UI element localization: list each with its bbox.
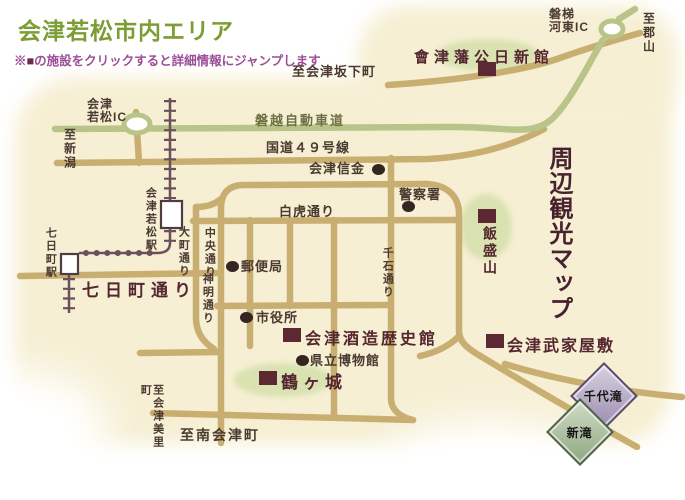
note-text: の施設をクリックすると詳細情報にジャンプします <box>34 54 321 68</box>
rail-west <box>79 228 170 253</box>
label-city-hall: 市役所 <box>256 311 298 326</box>
label-wakamatsu-ic: 会津 若松IC <box>87 98 127 125</box>
label-sengoku-street: 千石通り <box>381 247 393 299</box>
label-omachi-street: 大町通り <box>177 226 189 278</box>
expressway-stub <box>619 9 635 19</box>
road-to-minamiaizu <box>153 413 413 420</box>
dot-police-station <box>402 201 415 212</box>
label-bukeyashiki[interactable]: 会津武家屋敷 <box>507 332 615 356</box>
label-aizuwakamatsu-station: 会津若松駅 <box>144 187 156 252</box>
label-banetsu-expressway: 磐越自動車道 <box>255 114 345 129</box>
nanukamachi-station-box <box>61 254 78 274</box>
aizuwakamatsu-station-box <box>161 201 182 228</box>
label-chuo-street: 中央通り <box>203 227 215 279</box>
legend-square-icon: ■ <box>27 54 35 68</box>
logo-shintaki-text: 新滝 <box>567 423 593 440</box>
dot-post-office <box>226 261 239 272</box>
logo-chiyotaki-text: 千代滝 <box>584 387 623 404</box>
label-post-office: 郵便局 <box>241 260 283 275</box>
road-mid <box>217 305 390 306</box>
legend-note: ※■の施設をクリックすると詳細情報にジャンプします <box>14 50 321 69</box>
label-tsurugajo[interactable]: 鶴ヶ城 <box>281 368 347 393</box>
dot-city-hall <box>240 312 253 323</box>
note-prefix: ※ <box>14 54 27 68</box>
dot-prefectural-museum <box>296 355 309 366</box>
road-byakko <box>193 220 457 221</box>
label-to-niigata: 至新潟 <box>62 128 75 170</box>
label-sake-museum[interactable]: 会津酒造歴史館 <box>305 325 438 349</box>
page-title: 会津若松市内エリア <box>18 12 234 46</box>
label-nanukamachi-station: 七日町駅 <box>44 227 56 279</box>
marker-tsurugajo[interactable] <box>259 371 277 385</box>
label-aizu-shinkin: 会津信金 <box>309 162 365 177</box>
marker-bukeyashiki[interactable] <box>486 334 504 348</box>
marker-sake-museum[interactable] <box>283 328 301 342</box>
label-to-koriyama: 至郡山 <box>641 12 654 54</box>
marker-nisshinkan[interactable] <box>478 62 496 76</box>
label-kawahigashi-ic: 磐梯 河東IC <box>549 8 589 35</box>
label-byakko-street: 白虎通り <box>279 205 335 220</box>
road-to-misato <box>140 352 221 353</box>
kawahigashi-ic-circle <box>601 21 623 37</box>
dot-aizu-shinkin <box>372 164 385 175</box>
label-iimoriyama[interactable]: 飯盛山 <box>479 226 499 277</box>
label-to-misato: 至会津美里町 <box>139 384 164 450</box>
label-to-minamiaizu: 至南会津町 <box>180 428 260 444</box>
map-title-vertical: 周辺観光マップ <box>542 146 577 321</box>
label-nanukamachi-street: 七日町通り <box>82 276 197 301</box>
marker-iimoriyama[interactable] <box>478 209 496 223</box>
road-station-arc <box>196 199 221 207</box>
label-prefectural-museum: 県立博物館 <box>310 354 380 369</box>
label-shinmei-street: 神明通り <box>201 273 213 325</box>
wakamatsu-ic-circle <box>124 115 150 133</box>
label-route49: 国道４９号線 <box>266 141 350 156</box>
label-to-bange: 至会津坂下町 <box>292 65 376 80</box>
